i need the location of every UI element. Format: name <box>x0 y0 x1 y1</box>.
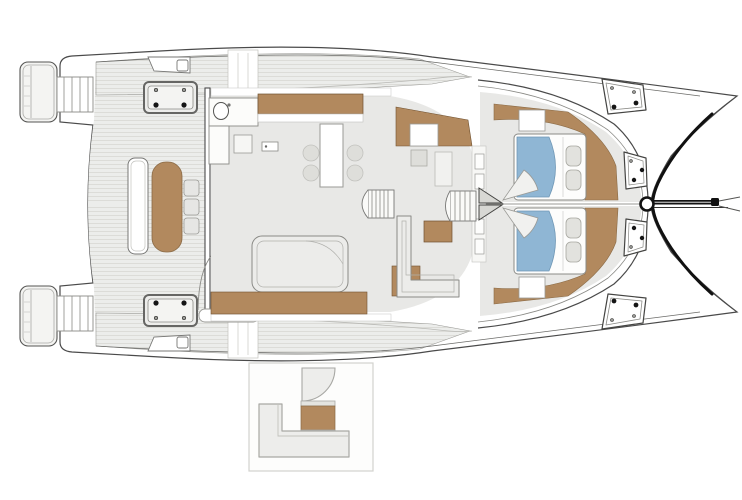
hatch-dot <box>611 87 614 90</box>
bowsprit-windlass <box>641 197 741 211</box>
dining-chair <box>303 165 319 181</box>
salon-sofa <box>252 236 348 292</box>
foredeck-hatch-outer <box>602 79 646 114</box>
galley-sink <box>214 103 229 120</box>
cockpit-table <box>152 162 182 252</box>
stern-steps <box>57 77 93 112</box>
stern-platform-outer <box>20 62 57 122</box>
hatch-dot <box>612 105 617 110</box>
dining-table <box>320 124 343 187</box>
bulkhead-panel <box>475 174 484 189</box>
sink-faucet <box>227 103 230 106</box>
pillow <box>566 170 581 190</box>
forward-table <box>424 221 452 242</box>
hatch-dot <box>634 101 639 106</box>
hatch-dot <box>632 178 636 182</box>
dining-chair <box>347 145 363 161</box>
hatch-dot <box>154 88 157 91</box>
catamaran-floorplan-canvas <box>0 0 742 500</box>
galley-control-panel <box>262 142 278 151</box>
forestay-bridle <box>719 197 740 211</box>
salon-window-band-bottom <box>211 314 391 321</box>
companionway-steps <box>446 191 477 221</box>
inset-table-cap <box>301 401 335 406</box>
deck-fitting <box>148 57 190 73</box>
foredeck-hatch-inner <box>624 152 647 189</box>
dining-chair <box>347 165 363 181</box>
locker-panel <box>435 152 452 186</box>
side-deck-hatch <box>144 82 197 113</box>
stern-platform <box>20 62 57 122</box>
hatch-dot <box>630 160 633 163</box>
side-table <box>411 150 427 166</box>
cabin-vanity <box>519 110 545 131</box>
salon-wood-sideboard <box>211 292 367 314</box>
control-dot <box>265 145 267 147</box>
galley-wood-counter <box>258 94 363 114</box>
floorplan-svg <box>0 0 742 500</box>
hatch-dot <box>182 88 185 91</box>
hatch-dot <box>633 91 636 94</box>
cleat-box <box>177 60 188 71</box>
inset-detail <box>249 363 373 471</box>
mid-staircase <box>362 190 394 218</box>
bulkhead-panel <box>475 239 484 254</box>
hatch-dot <box>640 168 644 172</box>
dining-chair <box>303 145 319 161</box>
pillow <box>566 146 581 166</box>
hatch-dot <box>153 102 158 107</box>
bowsprit-fitting <box>711 198 719 206</box>
inset-table-wood <box>301 406 335 430</box>
sunpad-hatch <box>410 124 438 146</box>
galley-shelf <box>258 114 363 122</box>
cockpit-chair <box>184 218 199 234</box>
cockpit-chair <box>184 199 199 215</box>
bulkhead-panel <box>475 154 484 169</box>
cockpit-chair <box>184 180 199 196</box>
windlass <box>641 198 654 211</box>
galley-counter-l <box>209 126 229 164</box>
galley-appliance <box>234 135 252 153</box>
hatch-dot <box>181 102 186 107</box>
